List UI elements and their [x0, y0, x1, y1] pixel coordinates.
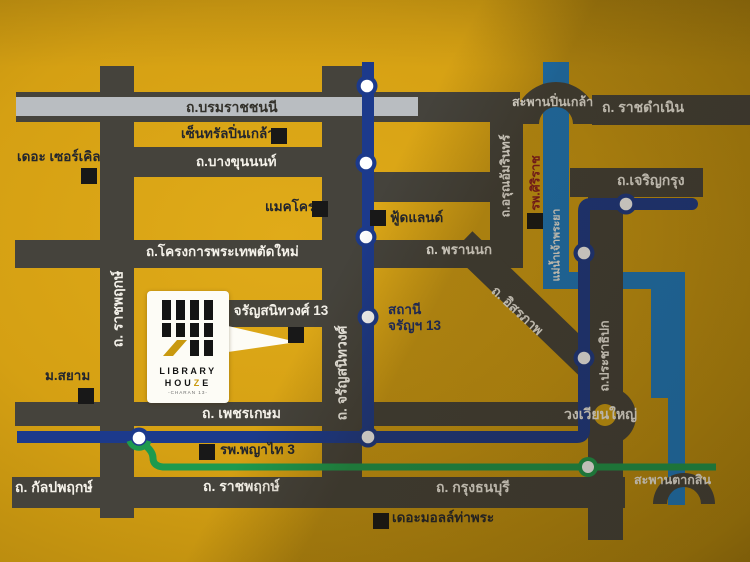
road-label-charoen-krung: ถ.เจริญกรุง [617, 173, 685, 188]
road-label-phetkasem: ถ. เพชรเกษม [202, 406, 281, 421]
logo-text-hou: HOU [165, 378, 194, 388]
station-marker [356, 153, 377, 174]
label-wongwian-yai: วงเวียนใหญ่ [564, 407, 637, 422]
station-marker-interchange [129, 428, 150, 449]
logo-text-z: Z [194, 378, 203, 388]
road-label-bang-khun-non: ถ.บางขุนนนท์ [196, 155, 276, 169]
logo-callout-pointer [228, 326, 297, 352]
road-krung-thonburi [12, 477, 625, 508]
road-label-kanlapaphruek: ถ. กัลปพฤกษ์ [15, 480, 93, 495]
marker-m-siam [78, 388, 94, 404]
road-label-arun-amarin: ถ.อรุณอัมรินทร์ [500, 135, 513, 218]
road-label-phran-nok: ถ. พรานนก [426, 243, 492, 257]
station-marker [358, 427, 379, 448]
station-marker-charan13 [358, 307, 379, 328]
label-station-charan13-line1: สถานี [388, 303, 421, 317]
label-phyathai-3: รพ.พญาไท 3 [220, 443, 295, 457]
road-label-ratchaphruek-horizontal: ถ. ราชพฤกษ์ [203, 479, 280, 494]
logo-text-charan13: -CHARAN 13- [147, 390, 229, 395]
logo-text-library: LIBRARY [147, 366, 229, 376]
marker-siriraj-hospital [527, 213, 543, 229]
label-central-pinklao: เซ็นทรัลปิ่นเกล้า [181, 127, 275, 141]
mrt-line-end-cap [686, 198, 698, 210]
marker-the-circle [81, 168, 97, 184]
station-marker-green [578, 457, 598, 477]
label-m-siam: ม.สยาม [45, 369, 90, 383]
label-siriraj-hospital: รพ.ศิริราช [530, 155, 543, 210]
label-station-charan13-line2: จรัญฯ 13 [388, 319, 441, 333]
library-house-logo-card: LIBRARY HOUZE -CHARAN 13- [147, 291, 229, 403]
marker-the-mall-tha-phra [373, 513, 389, 529]
road-label-borommaratchachonnani: ถ.บรมราชชนนี [186, 100, 278, 115]
road-label-ratchaphruek-vertical: ถ. ราชพฤกษ์ [111, 271, 126, 348]
label-the-mall-tha-phra: เดอะมอลล์ท่าพระ [392, 511, 494, 525]
library-house-books-icon [161, 300, 215, 356]
station-marker [357, 76, 378, 97]
label-makro: แมคโคร [265, 200, 315, 214]
marker-central-pinklao [271, 128, 287, 144]
road-label-krung-thonburi: ถ. กรุงธนบุรี [436, 480, 510, 495]
map-photo: ถ.บรมราชชนนี ถ.บางขุนนนท์ ถ.โครงการพระเท… [0, 0, 750, 562]
label-saphan-pinklao: สะพานปิ่นเกล้า [512, 96, 593, 109]
road-label-charan-sanitwong: ถ. จรัญสนิทวงศ์ [335, 326, 350, 421]
road-label-prachathipok: ถ.ประชาธิปก [599, 320, 612, 391]
label-saphan-taksin: สะพานตากสิน [634, 474, 711, 487]
label-chao-phraya-river: แม่น้ำเจ้าพระยา [552, 209, 563, 282]
station-marker [616, 194, 637, 215]
station-marker [574, 243, 595, 264]
marker-library-house-location [288, 327, 304, 343]
road-label-soi-charan-13: ช. จรัญสนิทวงศ์ 13 [217, 304, 328, 318]
marker-phyathai-3 [199, 444, 215, 460]
logo-text-e: E [202, 378, 211, 388]
road-label-ratchadamnoen: ถ. ราชดำเนิน [602, 100, 684, 115]
logo-text-houze: HOUZE [147, 378, 229, 388]
road-label-phra-thep: ถ.โครงการพระเทพตัดใหม่ [146, 245, 299, 259]
marker-makro [312, 201, 328, 217]
marker-foodland [370, 210, 386, 226]
road-phetkasem [15, 402, 588, 426]
station-marker [356, 227, 377, 248]
label-foodland: ฟู้ดแลนด์ [390, 211, 443, 225]
label-the-circle: เดอะ เซอร์เคิล [17, 150, 101, 164]
station-marker [574, 348, 595, 369]
